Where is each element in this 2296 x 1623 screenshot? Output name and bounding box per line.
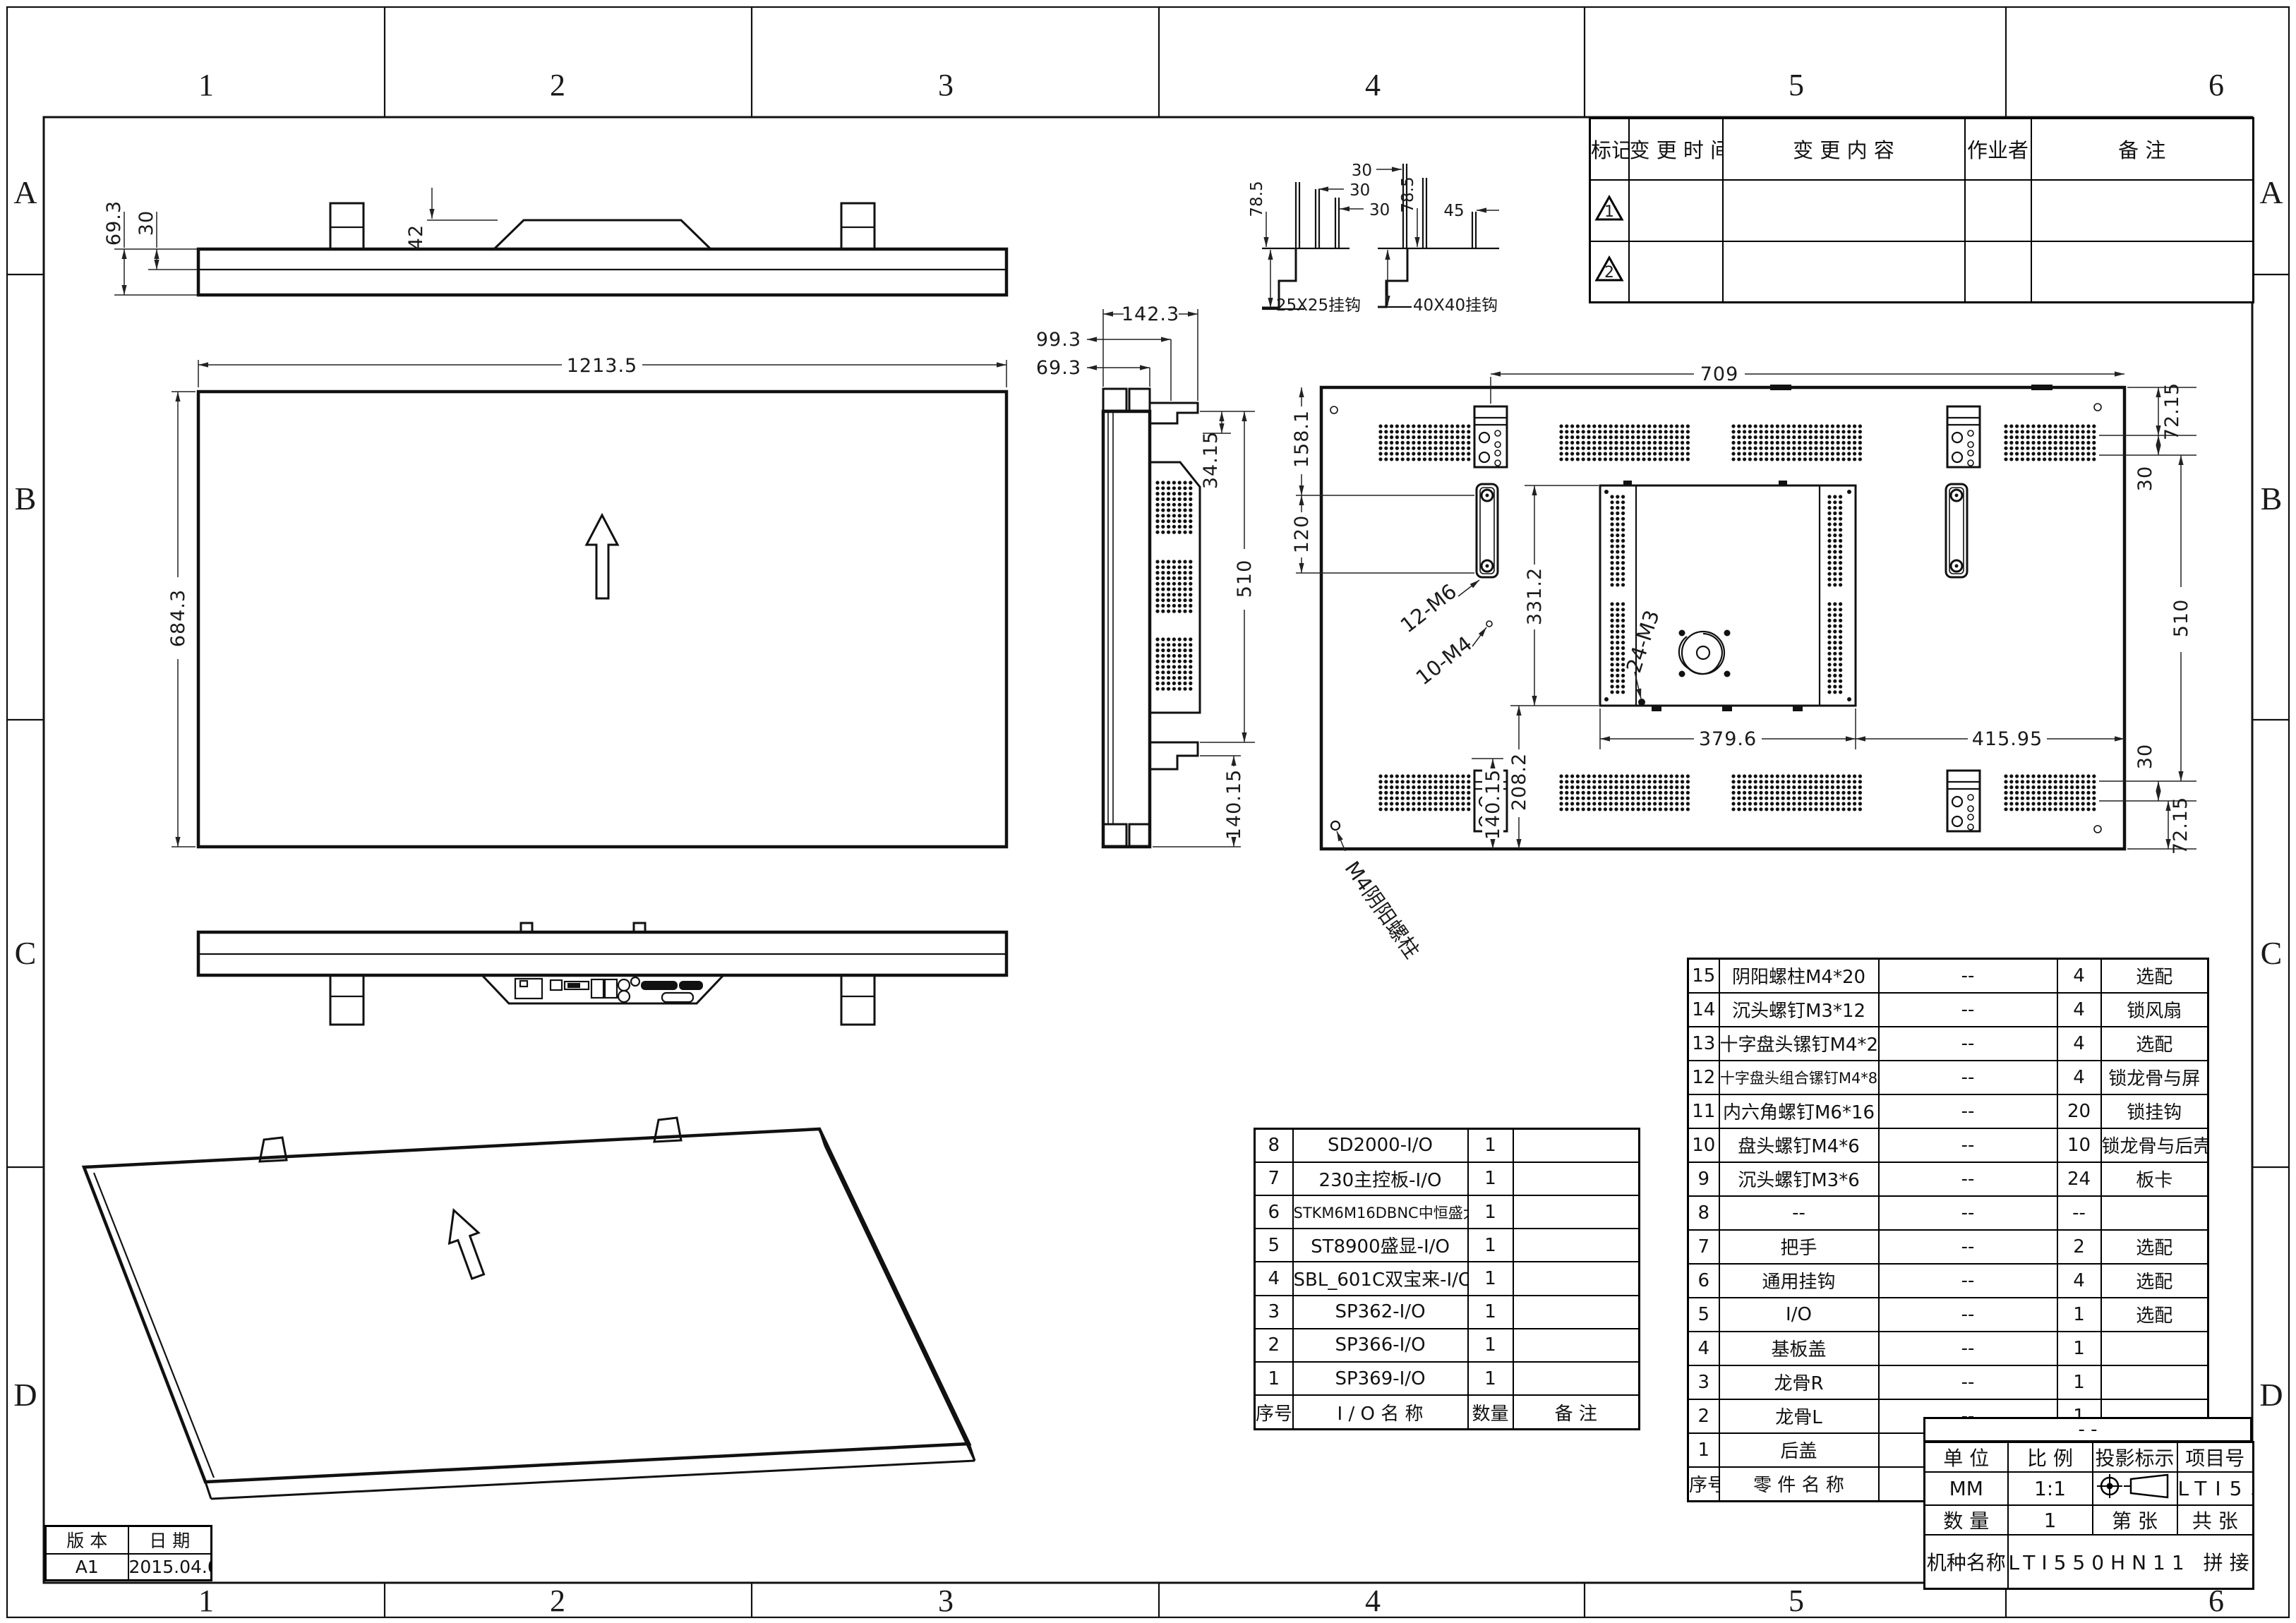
callout-12-M6: 12-M6 — [1396, 579, 1462, 638]
slot-bracket — [1946, 484, 1967, 577]
hook-small-label: 25X25挂钩 — [1276, 296, 1361, 315]
title-model-label: 机种名称 — [1925, 1535, 2008, 1588]
zone-number: 4 — [1365, 1583, 1381, 1618]
dim-709: 709 — [1700, 363, 1739, 385]
hook-big-label: 40X40挂钩 — [1413, 296, 1498, 315]
center-module — [1600, 481, 1856, 711]
zone-letter: C — [2261, 935, 2283, 971]
dim-120: 120 — [1291, 515, 1313, 554]
title-projection-symbol — [2093, 1472, 2177, 1505]
dim-415-95: 415.95 — [1972, 728, 2043, 750]
title-dash-row: - - — [1923, 1417, 2252, 1442]
dim-34-15: 34.15 — [1200, 431, 1222, 489]
front-view: 1213.5 684.3 — [167, 354, 1006, 847]
rev-header-remark: 备 注 — [2031, 119, 2254, 180]
title-block: 单 位 比 例 投影标示 项目号 MM 1:1 LTI550HN 数 量 1 第… — [1923, 1441, 2254, 1590]
rear-view: 709 72.15 30 510 30 72.15 158.1 120 331.… — [1291, 363, 2196, 963]
rev-header-operator: 作业者 — [1965, 119, 2031, 180]
dim-30c: 30 — [1352, 162, 1372, 180]
bottom-view — [198, 923, 1006, 1025]
rev-header-time: 变 更 时 间 — [1629, 119, 1723, 180]
date-value: 2015.04.09 — [128, 1554, 212, 1581]
dim-510-rear: 510 — [2170, 599, 2192, 638]
dim-142-3: 142.3 — [1122, 303, 1179, 325]
slot-bracket — [1477, 484, 1498, 577]
dim-99-3: 99.3 — [1036, 329, 1081, 351]
rev-header-content: 变 更 内 容 — [1723, 119, 1965, 180]
zone-number: 2 — [550, 1583, 565, 1618]
zone-number: 1 — [198, 1583, 214, 1618]
revision-triangle-icon: 2 — [1594, 255, 1624, 282]
revision-triangle-icon: 1 — [1594, 195, 1624, 222]
zone-number: 5 — [1789, 68, 1804, 102]
zone-number: 2 — [550, 68, 565, 102]
zone-number: 1 — [198, 68, 214, 102]
title-qty-label: 数 量 — [1925, 1505, 2008, 1535]
fan-icon — [1679, 630, 1731, 677]
dim-30: 30 — [136, 210, 157, 236]
hook-bracket — [1947, 406, 1980, 467]
first-angle-projection-icon — [2096, 1473, 2175, 1500]
dim-30a: 30 — [1350, 181, 1370, 200]
drawing-sheet: 1 2 3 4 5 6 1 2 3 4 5 6 A B C D A B C D … — [0, 0, 2296, 1623]
title-sheet-label: 第 张 — [2093, 1505, 2177, 1535]
dim-69-3: 69.3 — [103, 200, 125, 246]
title-project-value: LTI550HN — [2177, 1472, 2254, 1505]
rev-marker-cell: 1 — [1590, 180, 1629, 241]
revision-table: 标记 变 更 时 间 变 更 内 容 作业者 备 注 1 2 — [1589, 117, 2254, 303]
date-label: 日 期 — [128, 1526, 212, 1554]
dim-140-15: 140.15 — [1482, 769, 1504, 840]
hook-bracket — [1947, 771, 1980, 831]
zone-letter: A — [2259, 174, 2283, 210]
iso-view — [84, 1118, 975, 1499]
dim-42: 42 — [405, 224, 427, 250]
dim-158-1: 158.1 — [1291, 410, 1313, 468]
callout-m4-stud: M4阴阳螺柱 — [1340, 857, 1424, 963]
dim-72-15-b: 72.15 — [2170, 797, 2192, 855]
title-qty-value: 1 — [2008, 1505, 2093, 1535]
dim-78-5: 78.5 — [1248, 181, 1266, 217]
title-total-label: 共 张 — [2177, 1505, 2254, 1535]
rev-header-mark: 标记 — [1590, 119, 1629, 180]
zone-number: 4 — [1365, 68, 1381, 102]
dim-72-15-t: 72.15 — [2161, 382, 2183, 440]
zone-number: 5 — [1789, 1583, 1804, 1618]
title-scale-value: 1:1 — [2008, 1472, 2093, 1505]
zone-letter: C — [15, 935, 37, 971]
dim-684-3: 684.3 — [167, 589, 189, 647]
title-scale-label: 比 例 — [2008, 1442, 2093, 1473]
zone-letter: A — [13, 174, 37, 210]
zone-letter: D — [13, 1377, 37, 1413]
dim-45: 45 — [1443, 202, 1464, 220]
title-project-label: 项目号 — [2177, 1442, 2254, 1473]
io-table: 8SD2000-I/O1 7230主控板-I/O1 6STKM6M16DBNC中… — [1254, 1128, 1640, 1430]
callout-10-M4: 10-M4 — [1412, 632, 1477, 690]
title-projection-label: 投影标示 — [2093, 1442, 2177, 1473]
title-model-value: LTI550HN11 拼接外 — [2008, 1535, 2254, 1588]
callout-24-M3: 24-M3 — [1621, 607, 1664, 675]
dim-510-side: 510 — [1234, 560, 1256, 598]
dim-379-6: 379.6 — [1699, 728, 1757, 750]
zone-letter: D — [2259, 1377, 2283, 1413]
dim-208-2: 208.2 — [1508, 753, 1530, 811]
version-table: 版 本 日 期 A1 2015.04.09 — [44, 1525, 212, 1581]
dim-1213-5: 1213.5 — [567, 355, 637, 377]
version-value: A1 — [46, 1554, 128, 1581]
dim-140-15-side: 140.15 — [1223, 769, 1245, 840]
zone-number: 6 — [2208, 68, 2224, 102]
zone-letter: B — [15, 481, 37, 517]
dim-69-3b: 69.3 — [1036, 357, 1081, 379]
top-view: 69.3 30 42 — [103, 188, 1006, 295]
dim-30b: 30 — [1369, 201, 1390, 219]
svg-text:1: 1 — [1604, 203, 1614, 221]
title-unit-value: MM — [1925, 1472, 2008, 1505]
dim-30-b: 30 — [2134, 744, 2156, 769]
dim-331-2: 331.2 — [1524, 567, 1546, 625]
version-label: 版 本 — [46, 1526, 128, 1554]
side-view: 142.3 99.3 69.3 34.15 510 140.15 — [1036, 303, 1256, 847]
hook-details: 78.5 30 30 25X25挂钩 30 78.5 45 40X40挂钩 — [1248, 162, 1499, 315]
dim-78-5b: 78.5 — [1399, 176, 1417, 212]
rev-marker-cell: 2 — [1590, 241, 1629, 303]
hook-bracket — [1474, 406, 1507, 467]
dim-30-t: 30 — [2134, 466, 2156, 491]
zone-number: 3 — [938, 68, 954, 102]
svg-text:2: 2 — [1604, 264, 1614, 282]
zone-number: 3 — [938, 1583, 954, 1618]
zone-letter: B — [2261, 481, 2283, 517]
title-unit-label: 单 位 — [1925, 1442, 2008, 1473]
